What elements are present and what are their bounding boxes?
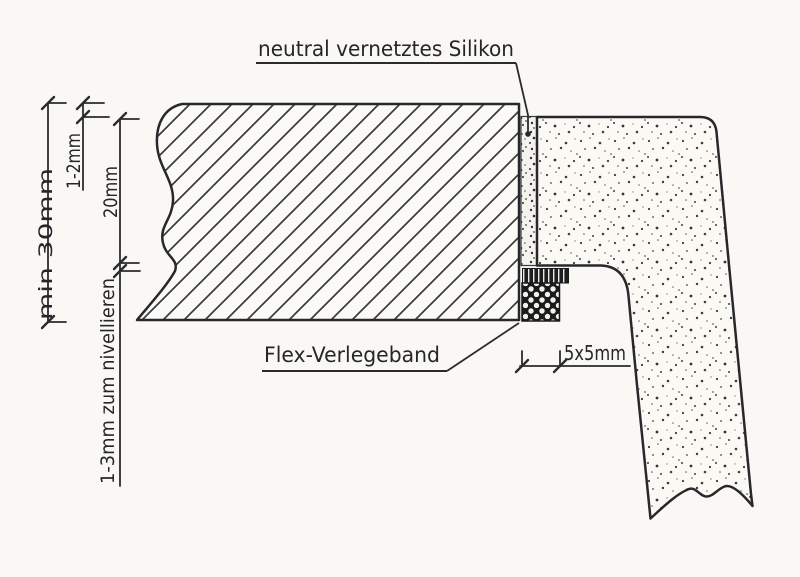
flex-leader-line	[447, 323, 519, 371]
dim-label-leveling: 1-3mm zum nivellieren	[97, 278, 119, 484]
dim-label-5x5mm: 5x5mm	[564, 341, 626, 365]
silicone-label: neutral vernetztes Silikon	[258, 37, 514, 61]
flex-tape-block	[522, 283, 560, 321]
dim-label-20mm: 20mm	[100, 166, 122, 218]
technical-drawing-scan: neutral vernetztes Silikon Flex-Verlegeb…	[0, 0, 800, 577]
silicone-joint-strip	[521, 117, 537, 266]
wall-panel-section	[537, 117, 753, 519]
countertop-section	[137, 104, 519, 320]
dim-label-min-30mm: min 30mm	[35, 168, 57, 320]
flex-tape-label: Flex-Verlegeband	[264, 343, 440, 367]
silicone-leader-dot	[525, 131, 531, 137]
flex-tape-band	[523, 269, 569, 284]
detail-drawing-svg: neutral vernetztes Silikon Flex-Verlegeb…	[0, 0, 800, 577]
dim-label-1-2mm: 1-2mm	[63, 133, 85, 189]
